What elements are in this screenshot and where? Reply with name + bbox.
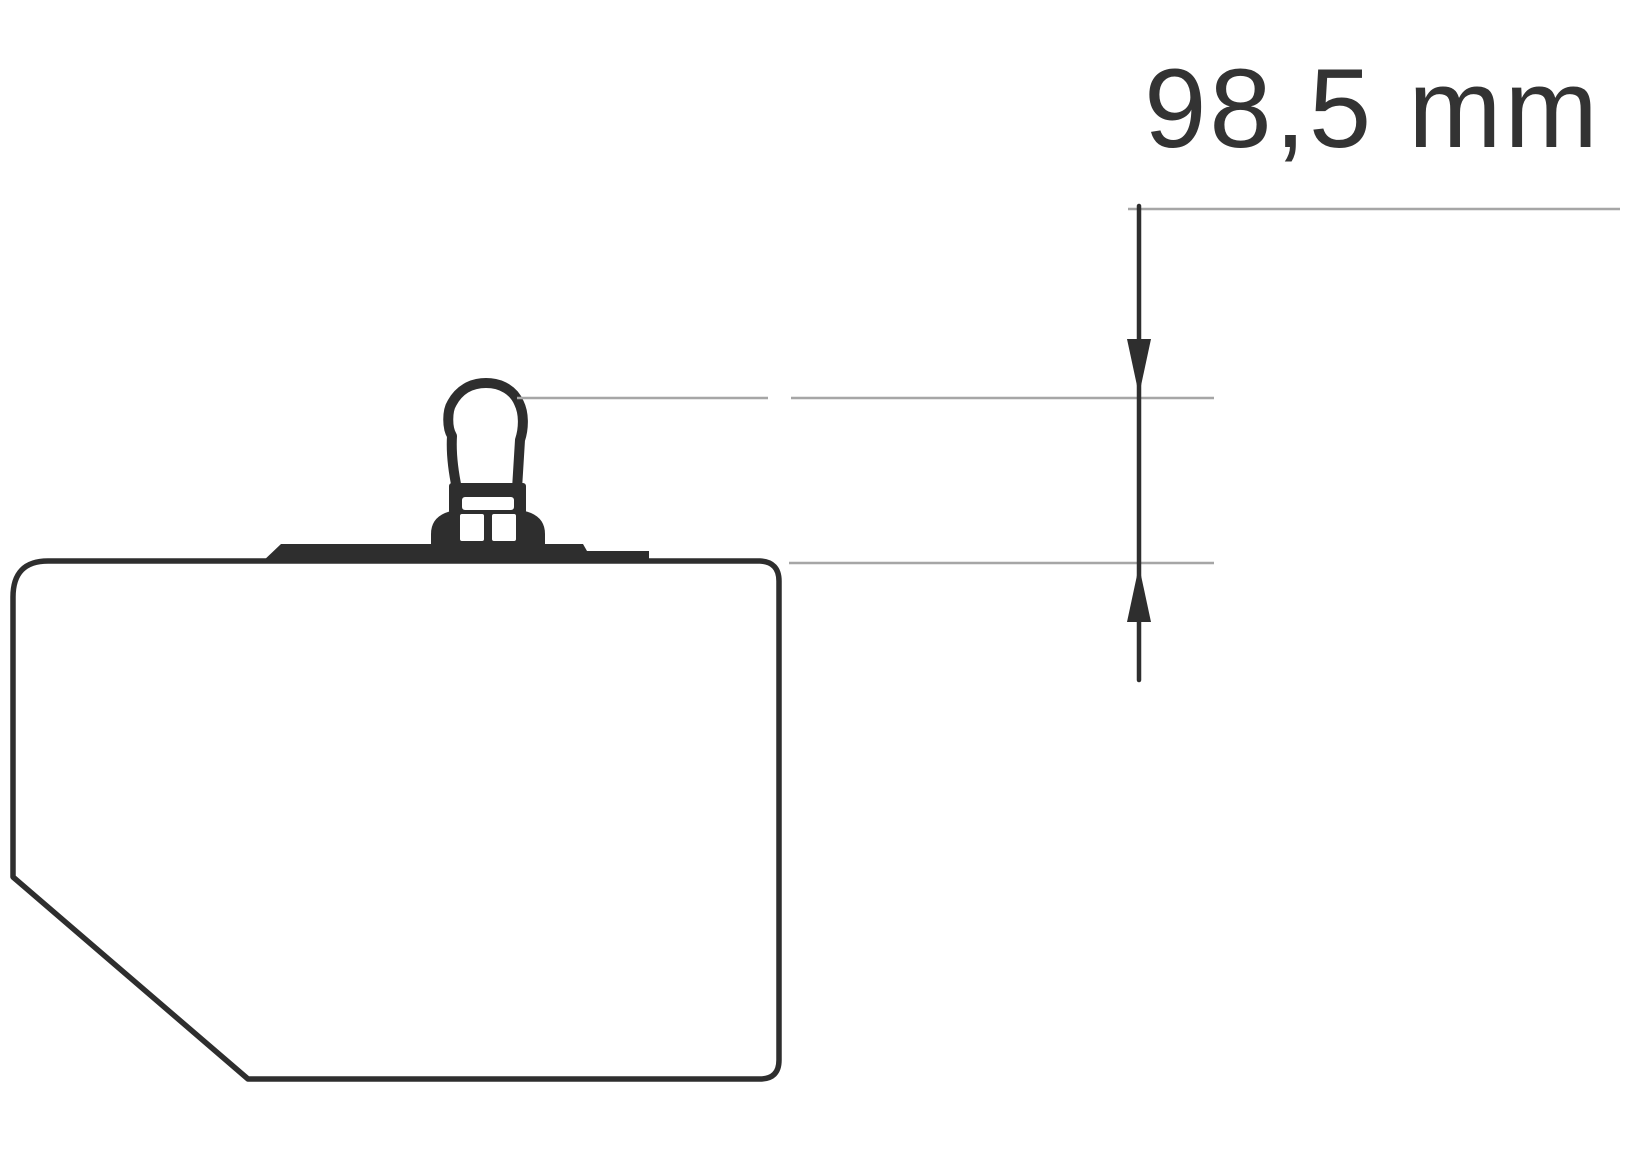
valve-window-left bbox=[460, 514, 484, 541]
technical-drawing-canvas: 98,5 mm bbox=[0, 0, 1625, 1170]
arrow-up-icon bbox=[1127, 566, 1151, 622]
valve-bulb bbox=[448, 383, 523, 489]
arrow-down-icon bbox=[1127, 339, 1151, 395]
dimension-annotation bbox=[517, 206, 1620, 680]
tank-body-outline bbox=[13, 561, 779, 1079]
drawing-svg bbox=[0, 0, 1625, 1170]
dimension-label: 98,5 mm bbox=[1120, 44, 1625, 173]
valve-window-right bbox=[492, 514, 516, 541]
valve-assembly bbox=[431, 383, 545, 548]
valve-base bbox=[431, 510, 545, 548]
valve-collar-slot bbox=[462, 497, 514, 510]
